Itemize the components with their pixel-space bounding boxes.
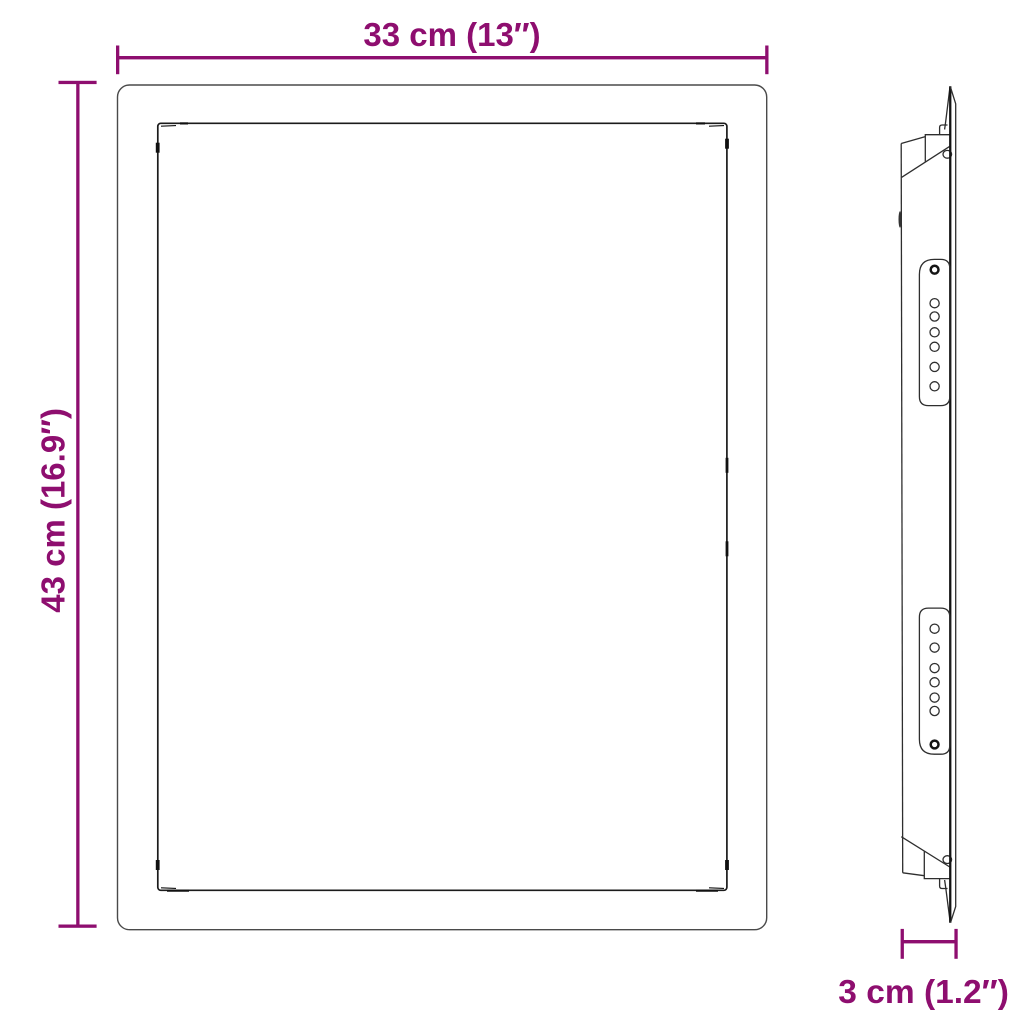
svg-text:33 cm (13″): 33 cm (13″) <box>363 16 540 53</box>
svg-text:3 cm (1.2″): 3 cm (1.2″) <box>838 974 1009 1011</box>
svg-text:43 cm (16.9″): 43 cm (16.9″) <box>35 408 72 613</box>
